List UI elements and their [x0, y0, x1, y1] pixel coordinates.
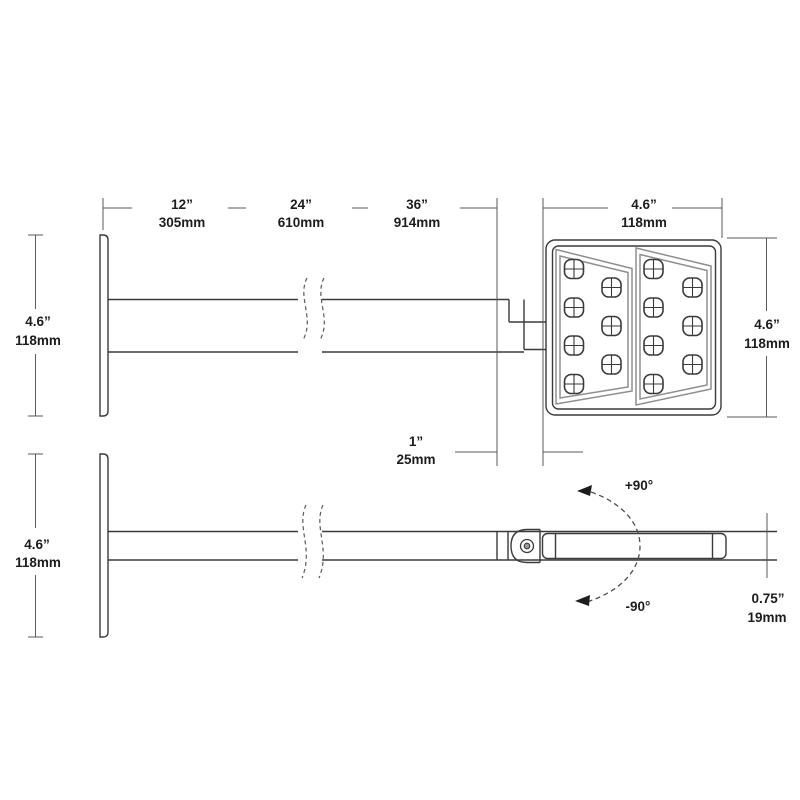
label-arm-12-mm: 305mm [159, 215, 206, 230]
label-head-thickness-mm: 19mm [747, 610, 786, 625]
front-view [100, 235, 721, 416]
label-tilt-up: +90° [625, 478, 653, 493]
rotation-arrow-down [575, 595, 590, 606]
led [683, 355, 702, 374]
led [644, 375, 663, 394]
label-offset-in: 1” [409, 434, 423, 449]
rotation-arc [587, 492, 640, 602]
led [565, 260, 584, 279]
drawing-svg: 12” 305mm 24” 610mm 36” 914mm 4.6” 118mm… [0, 0, 800, 800]
label-plate-side-mm: 118mm [15, 555, 61, 570]
label-arm-24-mm: 610mm [278, 215, 325, 230]
led [602, 278, 621, 297]
led [565, 336, 584, 355]
label-arm-36-in: 36” [406, 197, 428, 212]
led [683, 317, 702, 336]
led [565, 375, 584, 394]
head-slab [543, 534, 727, 559]
led [602, 317, 621, 336]
label-head-height-mm: 118mm [744, 336, 790, 351]
led [644, 336, 663, 355]
side-view-dimensions [28, 454, 767, 637]
label-offset-mm: 25mm [396, 452, 435, 467]
label-head-width-mm: 118mm [621, 215, 667, 230]
side-view [100, 454, 777, 637]
label-head-width-in: 4.6” [631, 197, 657, 212]
label-head-height-in: 4.6” [754, 317, 780, 332]
led [565, 298, 584, 317]
arm-end-seams [497, 532, 508, 561]
led [683, 278, 702, 297]
led [644, 260, 663, 279]
break-symbol-side [302, 505, 323, 578]
label-plate-side-in: 4.6” [24, 537, 50, 552]
led [602, 355, 621, 374]
label-head-thickness-in: 0.75” [751, 591, 784, 606]
mounting-plate [100, 235, 108, 416]
rotation-arrow-up [577, 485, 592, 496]
led [644, 298, 663, 317]
pivot-screw-inner [524, 543, 530, 549]
break-symbol [303, 278, 324, 340]
label-arm-36-mm: 914mm [394, 215, 441, 230]
head-slab-caps [556, 534, 713, 559]
arm-head-bracket [509, 300, 546, 350]
label-plate-front-in: 4.6” [25, 314, 51, 329]
label-arm-12-in: 12” [171, 197, 193, 212]
mounting-plate-side [100, 454, 108, 637]
label-arm-24-in: 24” [290, 197, 312, 212]
label-plate-front-mm: 118mm [15, 333, 61, 348]
label-tilt-down: -90° [626, 599, 651, 614]
luminaire-dimension-drawing: 12” 305mm 24” 610mm 36” 914mm 4.6” 118mm… [0, 0, 800, 800]
